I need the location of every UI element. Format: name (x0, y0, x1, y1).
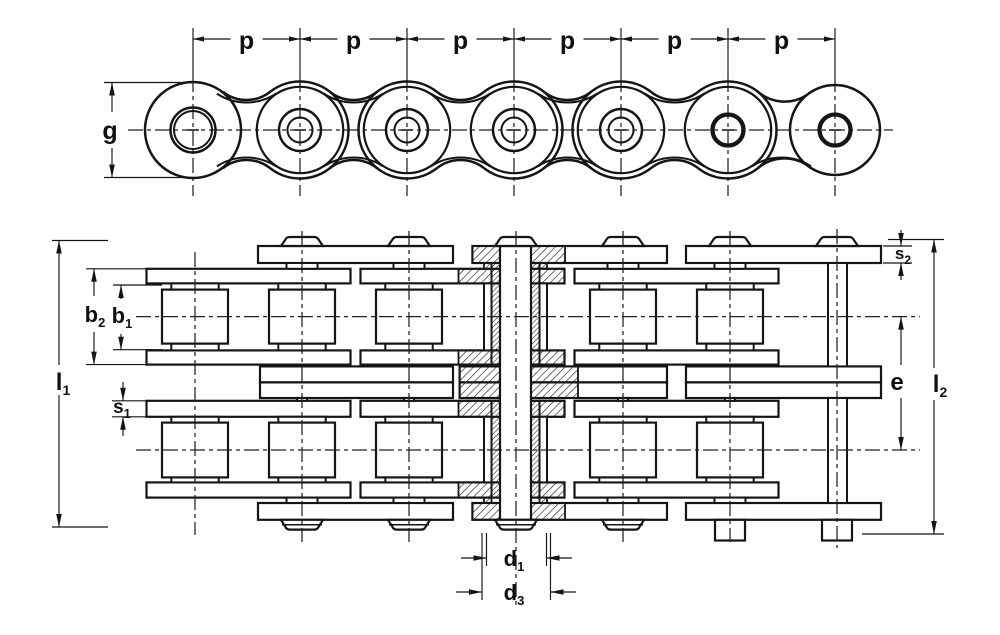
svg-text:p: p (346, 27, 361, 55)
svg-text:p: p (774, 27, 789, 55)
svg-text:g: g (102, 117, 117, 145)
svg-text:p: p (453, 27, 468, 55)
svg-text:e: e (890, 369, 903, 396)
svg-text:p: p (667, 27, 682, 55)
svg-text:p: p (239, 27, 254, 55)
svg-text:p: p (560, 27, 575, 55)
